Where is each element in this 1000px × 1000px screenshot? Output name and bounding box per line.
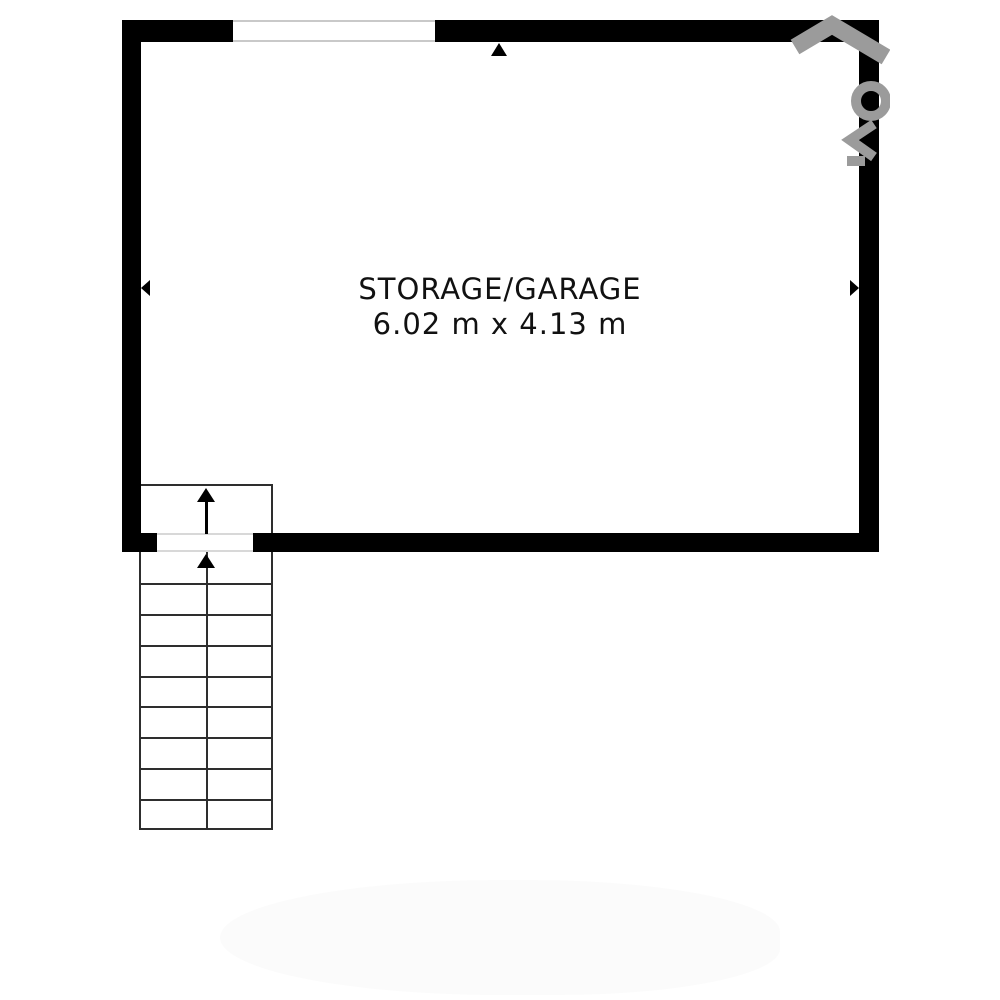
floor-plan: STORAGE/GARAGE 6.02 m x 4.13 m	[0, 0, 1000, 1000]
room-label-block: STORAGE/GARAGE 6.02 m x 4.13 m	[141, 272, 859, 342]
stair-tread-line	[141, 614, 271, 616]
stair-tread-line	[141, 676, 271, 678]
stair-tread-line	[141, 737, 271, 739]
room-dimensions: 6.02 m x 4.13 m	[141, 307, 859, 342]
wall-bottom-right-segment	[253, 533, 879, 552]
wall-left	[122, 20, 141, 552]
stair-lower-up-arrow-icon	[197, 554, 215, 568]
wall-right	[859, 20, 879, 552]
stair-center-line	[206, 552, 208, 828]
stair-tread-line	[141, 768, 271, 770]
room-name: STORAGE/GARAGE	[141, 272, 859, 307]
stair-tread-line	[141, 645, 271, 647]
stair-tread-line	[141, 799, 271, 801]
window-top	[233, 20, 435, 42]
stair-flight-lower	[139, 552, 273, 830]
stair-opening-bottom-line	[157, 550, 253, 552]
stair-tread-line	[141, 583, 271, 585]
top-dimension-arrow-icon	[491, 43, 507, 56]
stair-upper-up-arrow-icon	[197, 488, 215, 502]
wall-top-right-segment	[435, 20, 879, 42]
stair-tread-line	[141, 706, 271, 708]
wall-bottom-left-stub	[122, 533, 157, 552]
background-shadow-artifact	[220, 880, 780, 995]
stair-upper-arrow-shaft	[205, 501, 208, 534]
